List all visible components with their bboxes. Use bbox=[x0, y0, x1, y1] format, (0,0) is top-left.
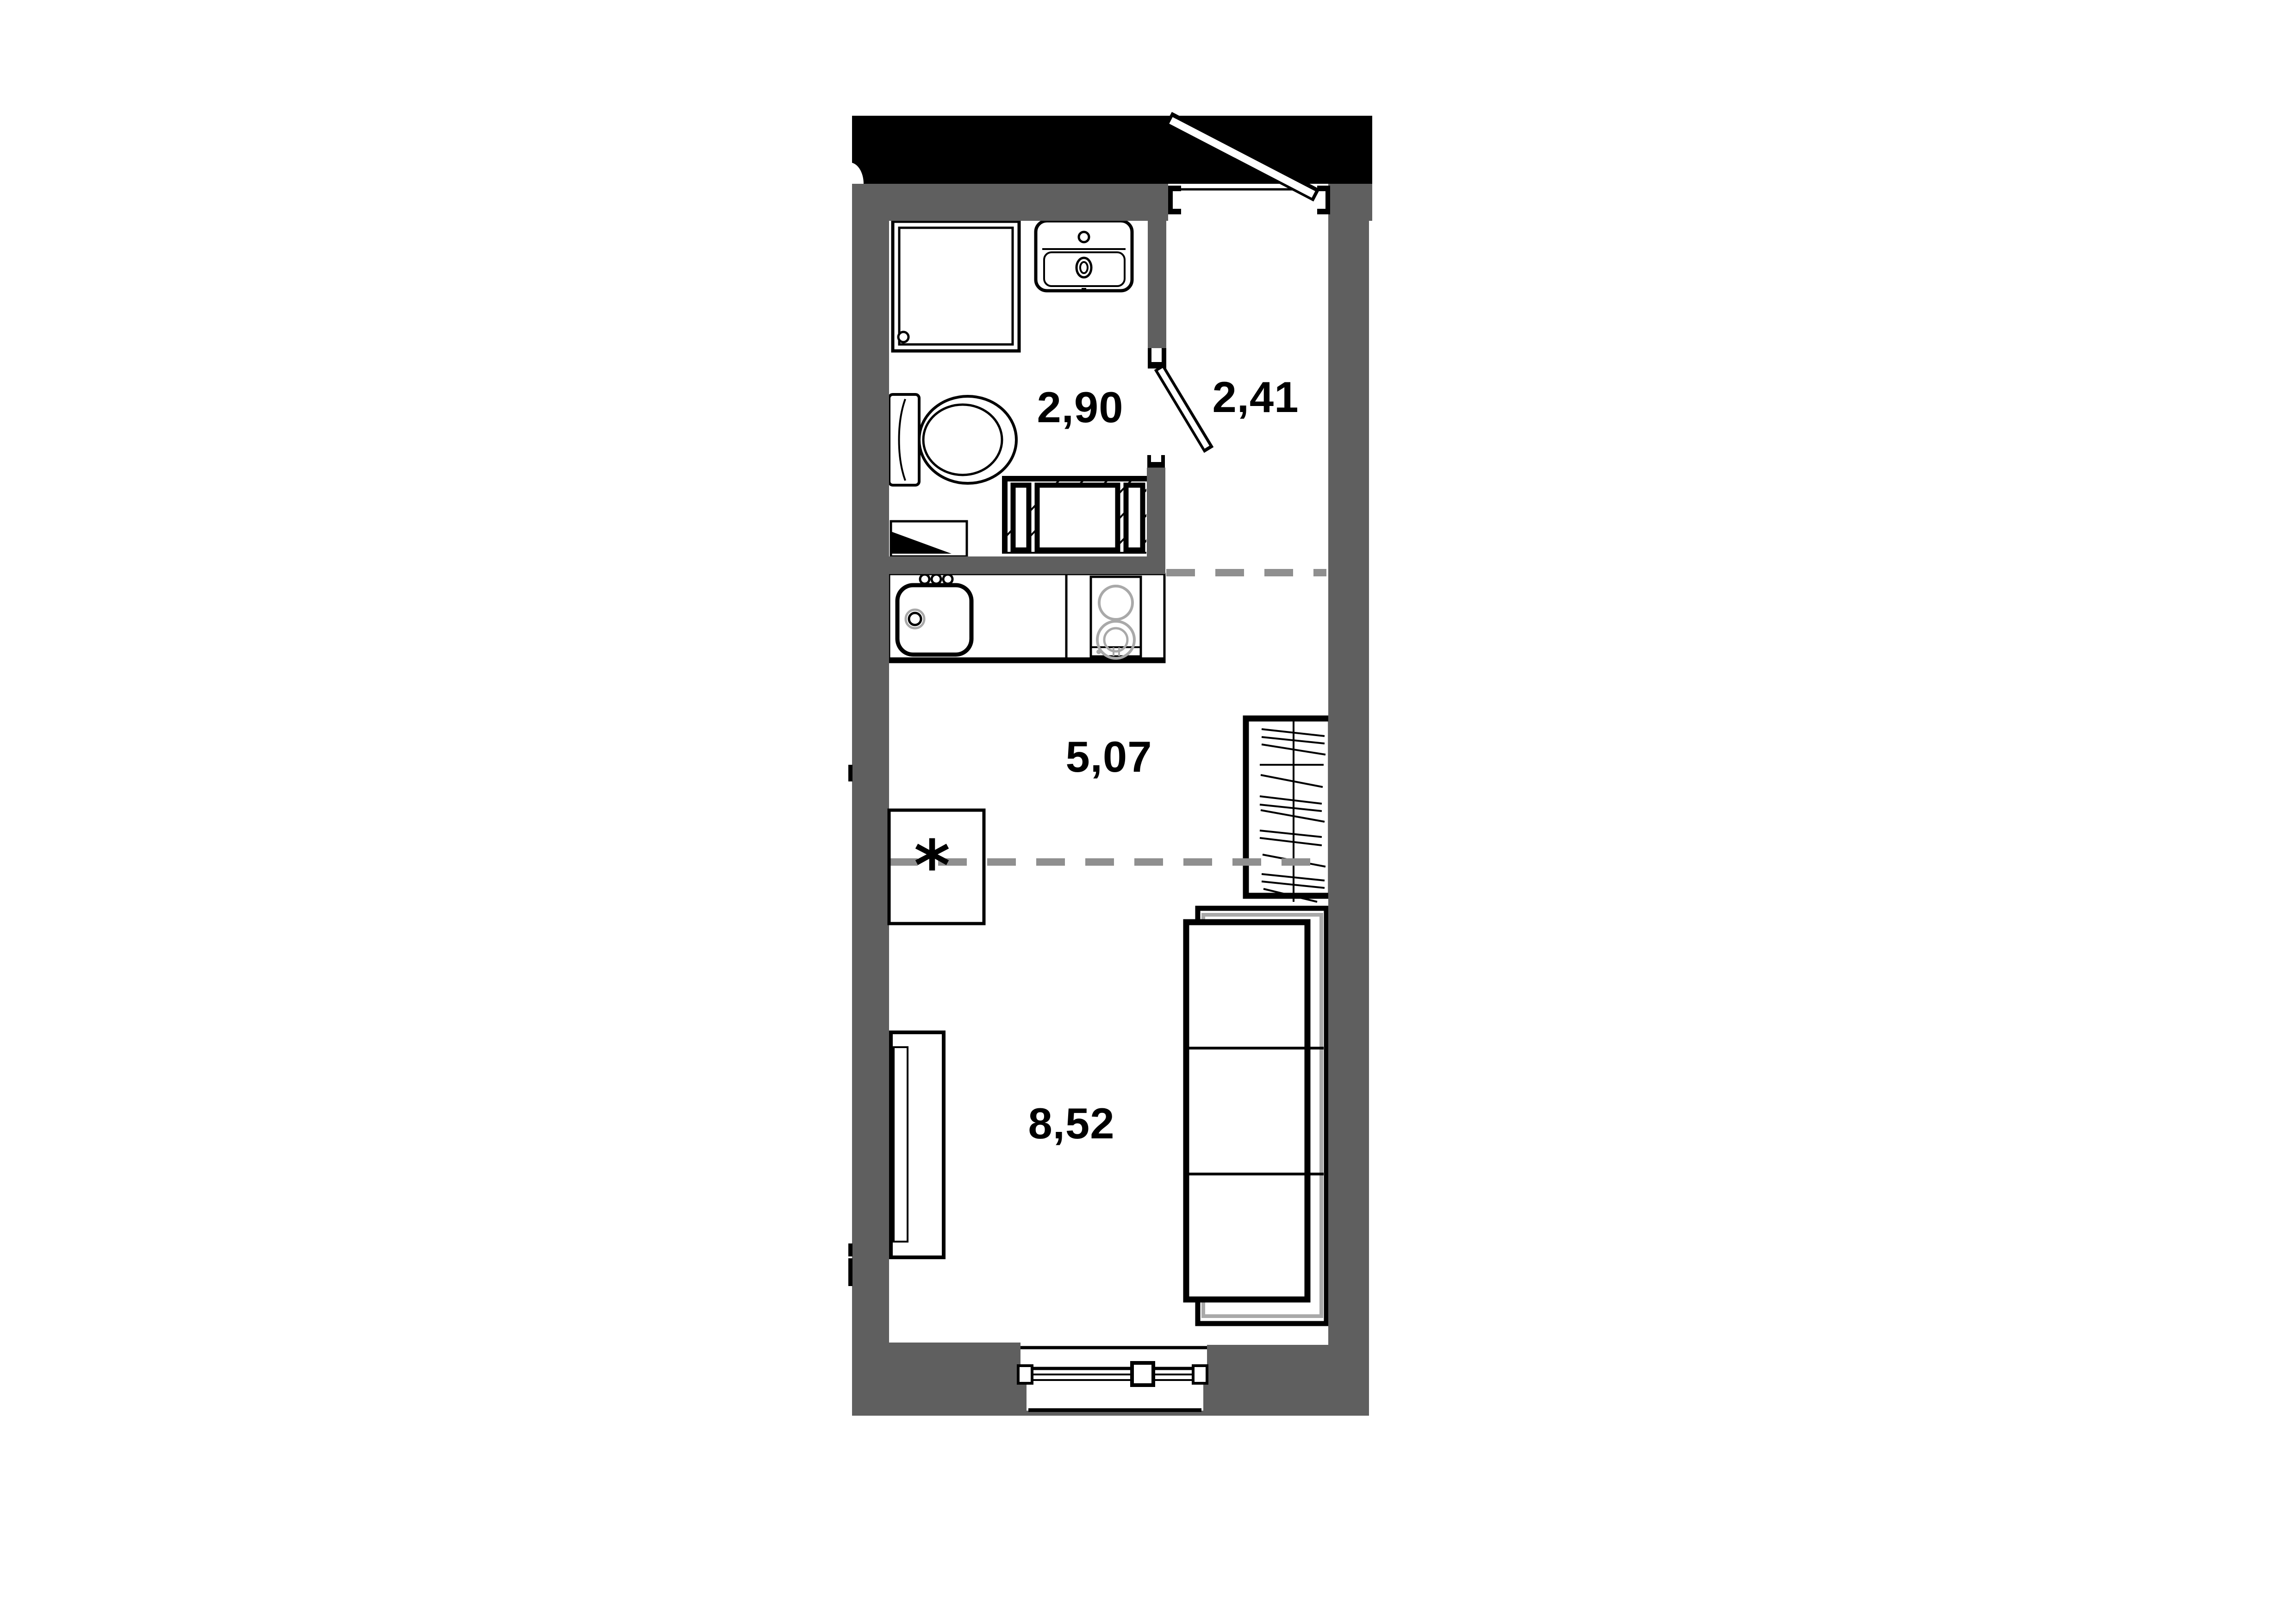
wall-top-left bbox=[852, 184, 1168, 221]
window-handle bbox=[1132, 1363, 1153, 1385]
door-jamb-left bbox=[1168, 186, 1181, 214]
washbasin-icon bbox=[1036, 221, 1132, 291]
area-label-hallway: 2,41 bbox=[1213, 373, 1299, 421]
floor-plan: H bbox=[0, 0, 2296, 1624]
bathroom-threshold-icon bbox=[891, 521, 967, 556]
floor-plan-page: H bbox=[0, 0, 2296, 1624]
kitchen-sink-icon bbox=[897, 575, 971, 655]
wall-bottom-right bbox=[1207, 1345, 1369, 1416]
wall-left bbox=[852, 184, 889, 1416]
stove-mark-label: H bbox=[1112, 645, 1121, 659]
bathroom-door-jamb-bottom bbox=[1147, 455, 1165, 468]
footnote-asterisk: * bbox=[914, 826, 950, 906]
area-label-living-room: 8,52 bbox=[1028, 1099, 1115, 1148]
area-label-kitchen: 5,07 bbox=[1066, 732, 1152, 781]
area-label-bathroom: 2,90 bbox=[1037, 383, 1124, 431]
window-end-cap-right bbox=[1193, 1366, 1207, 1383]
bathroom-door-leaf bbox=[1159, 367, 1209, 450]
wardrobe-icon bbox=[1246, 718, 1331, 902]
balcony-window-icon bbox=[1018, 1348, 1207, 1411]
shower-cabin-icon bbox=[893, 221, 1019, 351]
window-end-cap-left bbox=[1018, 1366, 1032, 1383]
dresser-icon bbox=[891, 1032, 944, 1257]
balcony-sill bbox=[1027, 1382, 1203, 1411]
sofa-bed-icon bbox=[1186, 908, 1326, 1324]
wall-bottom-left bbox=[852, 1343, 1020, 1416]
toilet-icon bbox=[889, 394, 1016, 485]
wall-bathroom-divider-upper bbox=[1148, 221, 1166, 367]
bathroom-door bbox=[1147, 348, 1209, 468]
wall-right bbox=[1328, 184, 1369, 1416]
washing-machine-icon bbox=[981, 470, 1213, 562]
wall-bathroom-bottom bbox=[852, 556, 1165, 574]
stove-icon: H bbox=[1091, 577, 1141, 659]
wall-joint-marks bbox=[848, 765, 852, 1286]
